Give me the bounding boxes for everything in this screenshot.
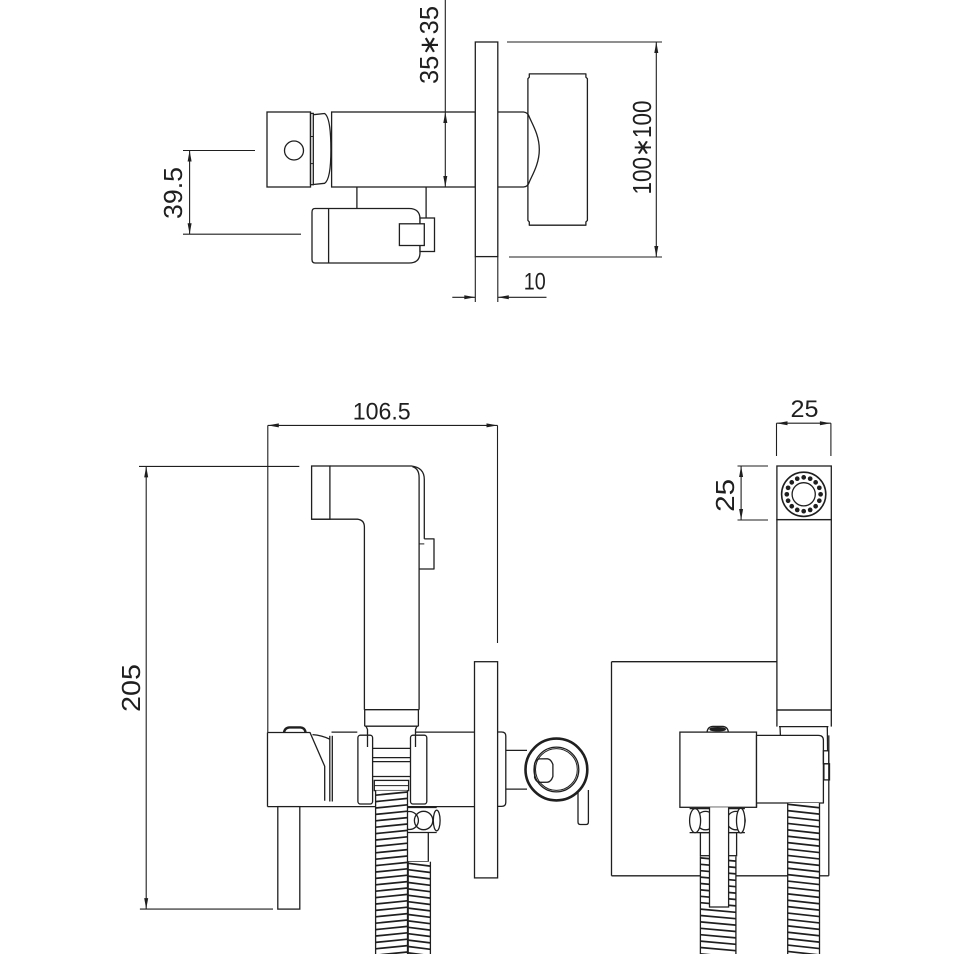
svg-text:10: 10 bbox=[524, 268, 546, 295]
svg-text:25: 25 bbox=[791, 396, 819, 423]
svg-text:25: 25 bbox=[710, 479, 740, 512]
svg-text:35∗35: 35∗35 bbox=[414, 6, 444, 84]
svg-text:39.5: 39.5 bbox=[158, 167, 188, 219]
svg-text:205: 205 bbox=[116, 664, 146, 712]
svg-text:100∗100: 100∗100 bbox=[627, 101, 657, 195]
svg-text:106.5: 106.5 bbox=[353, 398, 411, 425]
